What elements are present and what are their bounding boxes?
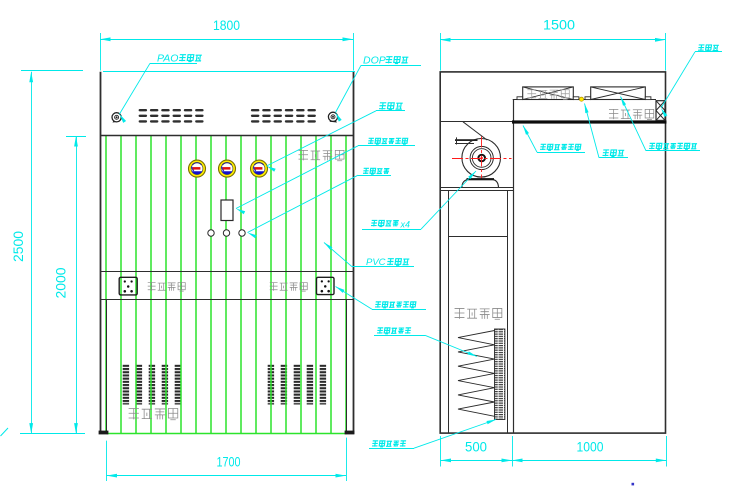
svg-text:1800: 1800 [213, 17, 240, 33]
svg-text:2000: 2000 [53, 267, 69, 298]
svg-text:2500: 2500 [10, 231, 26, 262]
svg-text:x4: x4 [400, 220, 411, 230]
svg-text:1000: 1000 [577, 439, 604, 455]
svg-text:1700: 1700 [217, 454, 241, 470]
svg-text:DOP: DOP [363, 55, 386, 67]
svg-text:500: 500 [465, 439, 487, 455]
svg-text:1500: 1500 [543, 17, 575, 33]
svg-text:PAO: PAO [157, 53, 178, 65]
